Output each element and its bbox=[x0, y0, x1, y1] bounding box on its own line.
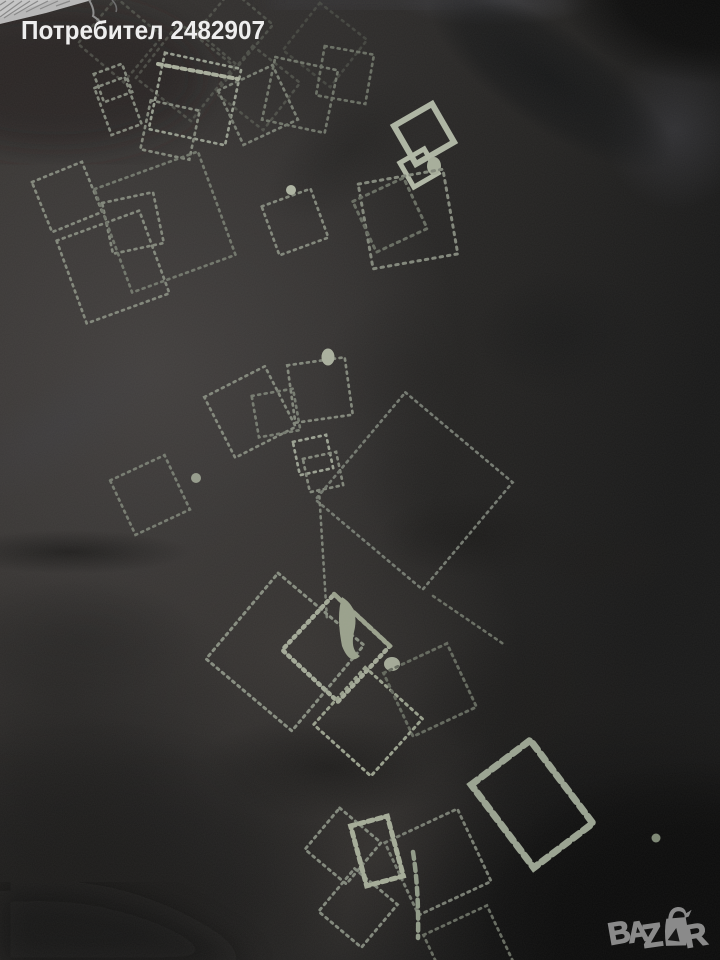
svg-text:Потребител 2482907: Потребител 2482907 bbox=[21, 15, 265, 45]
